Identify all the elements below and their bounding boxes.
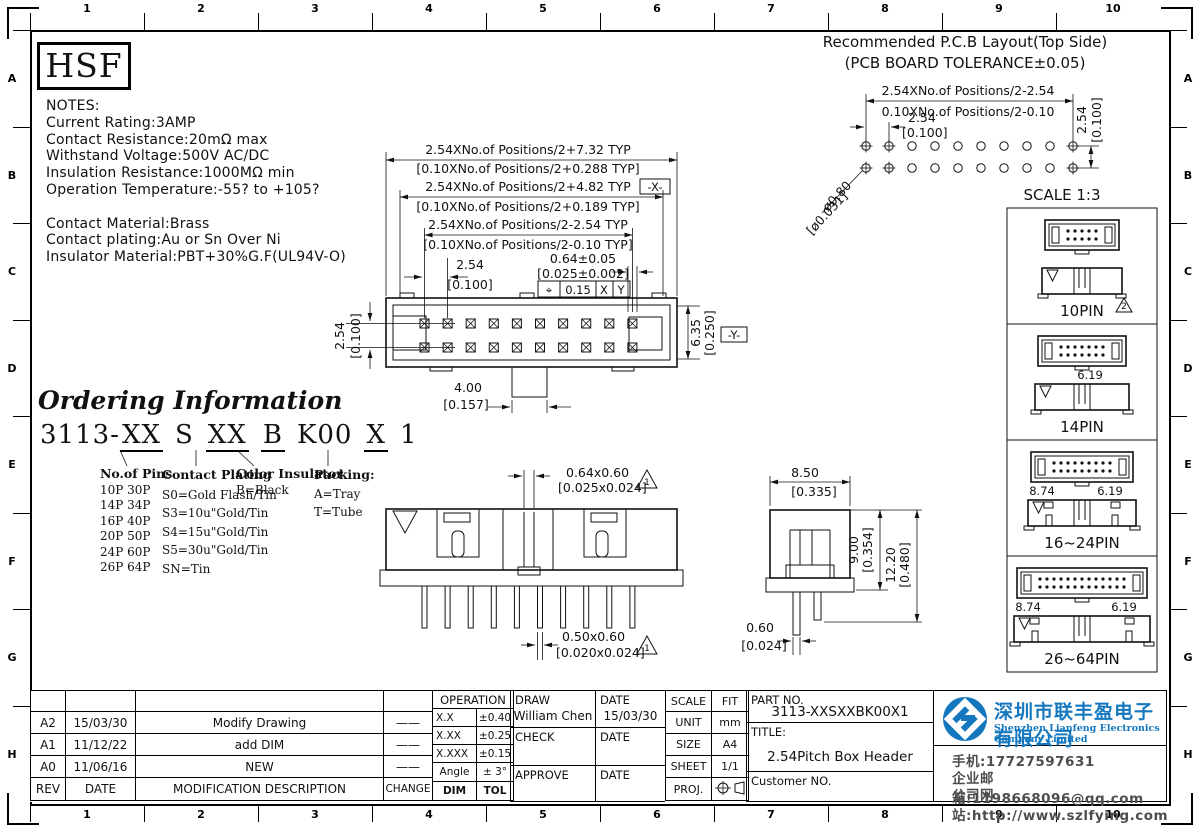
- plating-option: S3=10u"Gold/Tin: [162, 504, 277, 523]
- side-h2-in: [0.480]: [897, 542, 912, 588]
- scale-label: SCALE 1:3: [1024, 186, 1101, 204]
- approve-label: APPROVE: [515, 768, 569, 782]
- company-name-en: Shenzhen Lianfeng Electronics Company Li…: [994, 723, 1166, 745]
- pitch: 2.54: [456, 257, 484, 272]
- pcb-dim-mm: 2.54XNo.of Positions/2-2.54: [882, 83, 1055, 98]
- pcb-hole-pattern: [860, 140, 1080, 175]
- rev-triangle: 2: [1121, 302, 1127, 312]
- code-s: S: [175, 420, 194, 450]
- customer-cell: Customer NO.: [746, 772, 933, 802]
- dim1-in: [0.10XNo.of Positions/2+0.288 TYP]: [416, 161, 639, 176]
- pin-square-in: [0.025±0.002]: [537, 266, 629, 281]
- datum-x-label: -X-: [647, 180, 662, 194]
- check-cell: CHECK: [510, 728, 595, 766]
- variant-dim: 6.19: [1077, 368, 1103, 382]
- tol-value: ±0.40: [477, 709, 514, 727]
- code-prefix: 3113-: [40, 420, 120, 450]
- draw-date-cell: DATE 15/03/30: [595, 690, 665, 728]
- tol-label: X.XXX: [433, 745, 477, 763]
- rev-desc: NEW: [136, 756, 384, 778]
- rev-date: 11/12/22: [66, 734, 136, 756]
- row-pitch-in: [0.100]: [348, 313, 363, 359]
- ordering-code: 3113- XX S XX B K00 X 1: [40, 420, 418, 452]
- notes-block: NOTES:Current Rating:3AMPContact Resista…: [46, 98, 376, 266]
- company-website: 公司网站:http://www.szlfying.com: [952, 784, 1168, 824]
- rev-change: ——: [384, 712, 433, 734]
- rev-triangle-bottom: 1: [644, 644, 650, 654]
- height-in: [0.250]: [702, 310, 717, 356]
- part-no-value: 3113-XXSXXBK00X1: [747, 704, 933, 720]
- note-line: Insulation Resistance:1000MΩ min: [46, 165, 376, 182]
- gdt-frame: ⌖ 0.15 X Y: [538, 281, 630, 297]
- rev-desc: Modify Drawing: [136, 712, 384, 734]
- draw-label: DRAW: [515, 693, 550, 707]
- operation-header: OPERATION: [433, 691, 514, 709]
- pcb-rowpitch: 2.54: [1074, 106, 1089, 134]
- code-packing: X: [364, 420, 388, 452]
- scale-label: SCALE: [666, 691, 712, 712]
- pcb-rowpitch-in: [0.100]: [1089, 97, 1104, 143]
- change-header: CHANGE: [384, 778, 433, 801]
- rev-date: 11/06/16: [66, 756, 136, 778]
- ordering-title: Ordering Information: [38, 386, 342, 415]
- gdt-tol: 0.15: [565, 283, 591, 297]
- code-pins: XX: [120, 420, 163, 452]
- pin-variant-panels: 10PIN214PIN6.1916~24PIN8.746.1926~64PIN8…: [1007, 208, 1157, 672]
- meta-table: SCALEFIT UNITmm SIZEA4 SHEET1/1 PROJ.: [665, 690, 749, 801]
- date-label: DATE: [600, 768, 630, 782]
- operation-table: OPERATION X.X±0.40 X.XX±0.25 X.XXX±0.15 …: [432, 690, 514, 801]
- engineering-drawing-page: { "border": { "cols": ["1","2","3","4","…: [0, 0, 1200, 832]
- note-line: Contact Material:Brass: [46, 216, 376, 233]
- variant-label: 26~64PIN: [1044, 650, 1119, 668]
- rev-triangle-top: 1: [644, 478, 650, 488]
- pcb-pitch: 2.54: [908, 110, 936, 125]
- projection-symbol-icon: [712, 778, 749, 801]
- tol-value: ± 3°: [477, 763, 514, 782]
- note-line: Current Rating:3AMP: [46, 115, 376, 132]
- desc-header: MODIFICATION DESCRIPTION: [136, 778, 384, 801]
- approve-date-cell: DATE: [595, 766, 665, 802]
- title-label: TITLE:: [751, 725, 786, 739]
- draw-name: William Chen: [511, 709, 595, 723]
- approve-cell: APPROVE: [510, 766, 595, 802]
- company-header-cell: 深圳市联丰盈电子有限公司 Shenzhen Lianfeng Electroni…: [933, 690, 1167, 746]
- variant-label: 16~24PIN: [1044, 534, 1119, 552]
- plating-option: S5=30u"Gold/Tin: [162, 541, 277, 560]
- pcb-title: Recommended P.C.B Layout(Top Side): [823, 33, 1107, 51]
- customer-label: Customer NO.: [751, 774, 831, 788]
- unit-value: mm: [712, 712, 749, 734]
- rev-change: ——: [384, 734, 433, 756]
- pcb-layout: Recommended P.C.B Layout(Top Side) (PCB …: [803, 33, 1107, 237]
- dim3-in: [0.10XNo.of Positions/2-0.10 TYP]: [423, 237, 632, 252]
- packing-option: A=Tray: [314, 485, 375, 503]
- variant-dim: 6.19: [1097, 484, 1123, 498]
- draw-date: 15/03/30: [596, 709, 665, 723]
- tol-value: ±0.25: [477, 727, 514, 745]
- date-header: DATE: [66, 778, 136, 801]
- plating-option: S4=15u"Gold/Tin: [162, 523, 277, 542]
- scale-value: FIT: [712, 691, 749, 712]
- top-view-pins: [420, 319, 637, 352]
- unit-label: UNIT: [666, 712, 712, 734]
- rev-date: 15/03/30: [66, 712, 136, 734]
- size-label: SIZE: [666, 734, 712, 756]
- code-one: 1: [400, 420, 418, 450]
- variant-dim: 8.74: [1015, 600, 1041, 614]
- rev-id: A2: [31, 712, 66, 734]
- front-view-pins: [422, 586, 635, 628]
- tol-label: Angle: [433, 763, 477, 782]
- pcb-pitch-in: [0.100]: [902, 125, 948, 140]
- part-no-cell: PART NO. 3113-XXSXXBK00X1: [746, 690, 933, 723]
- sheet-label: SHEET: [666, 756, 712, 778]
- ordering-leaders: [120, 450, 328, 466]
- side-view: 8.50 [0.335] 9.00 [0.354] 12.20 [0.480] …: [741, 465, 922, 655]
- packing-option: T=Tube: [314, 503, 375, 521]
- packing-header: Packing:: [314, 466, 375, 484]
- title-cell: TITLE: 2.54Pitch Box Header: [746, 723, 933, 772]
- check-date-cell: DATE: [595, 728, 665, 766]
- note-line: NOTES:: [46, 98, 376, 115]
- variant-label: 10PIN: [1060, 302, 1104, 320]
- side-pin-in: [0.024]: [741, 638, 787, 653]
- plating-option: SN=Tin: [162, 560, 277, 579]
- tol-value: TOL: [477, 782, 514, 801]
- pin-square: 0.64±0.05: [550, 251, 616, 266]
- revision-table: A2 15/03/30 Modify Drawing —— A1 11/12/2…: [30, 690, 433, 801]
- row-pitch: 2.54: [332, 322, 347, 350]
- code-k00: K00: [297, 420, 353, 450]
- pin-top-dim: 0.64x0.60: [566, 465, 629, 480]
- side-width-in: [0.335]: [791, 484, 837, 499]
- note-line: Contact plating:Au or Sn Over Ni: [46, 232, 376, 249]
- note-line: Withstand Voltage:500V AC/DC: [46, 148, 376, 165]
- note-line: Operation Temperature:-55? to +105?: [46, 182, 376, 199]
- dim2-in: [0.10XNo.of Positions/2+0.189 TYP]: [416, 199, 639, 214]
- side-width: 8.50: [791, 465, 819, 480]
- sheet-value: 1/1: [712, 756, 749, 778]
- note-line: Insulator Material:PBT+30%G.F(UL94V-O): [46, 249, 376, 266]
- dim1: 2.54XNo.of Positions/2+7.32 TYP: [425, 142, 631, 157]
- pcb-tolerance: (PCB BOARD TOLERANCE±0.05): [845, 54, 1086, 72]
- code-plating: XX: [206, 420, 249, 452]
- front-view: 0.64x0.60 [0.025x0.024] 1 0.50x0.60 [0.0…: [380, 465, 683, 660]
- gdt-symbol: ⌖: [546, 283, 553, 297]
- variant-dim: 6.19: [1111, 600, 1137, 614]
- draw-cell: DRAW William Chen: [510, 690, 595, 728]
- tab-width-in: [0.157]: [443, 397, 489, 412]
- date-label: DATE: [600, 730, 630, 744]
- tab-width: 4.00: [454, 380, 482, 395]
- title-block: A2 15/03/30 Modify Drawing —— A1 11/12/2…: [30, 690, 1167, 802]
- dim2: 2.54XNo.of Positions/2+4.82 TYP: [425, 179, 631, 194]
- code-color: B: [261, 420, 285, 452]
- pin-bot-dim-in: [0.020x0.024]: [556, 645, 645, 660]
- tol-label: DIM: [433, 782, 477, 801]
- variant-dim: 8.74: [1029, 484, 1055, 498]
- gdt-datum1: X: [600, 283, 608, 297]
- variant-label: 14PIN: [1060, 418, 1104, 436]
- height: 6.35: [688, 319, 703, 347]
- check-label: CHECK: [515, 730, 555, 744]
- rev-desc: add DIM: [136, 734, 384, 756]
- rev-change: ——: [384, 756, 433, 778]
- note-line: Contact Resistance:20mΩ max: [46, 132, 376, 149]
- side-h2: 12.20: [883, 547, 898, 583]
- date-label: DATE: [600, 693, 630, 707]
- side-h1-in: [0.354]: [860, 527, 875, 573]
- note-line: [46, 199, 376, 216]
- gdt-datum2: Y: [616, 283, 625, 297]
- company-logo-icon: [940, 695, 990, 743]
- company-contact-cell: 手机:17727597631 企业邮箱:1198668096@qq.com 公司…: [933, 746, 1167, 802]
- rev-header: REV: [31, 778, 66, 801]
- tol-value: ±0.15: [477, 745, 514, 763]
- tol-label: X.X: [433, 709, 477, 727]
- dim3: 2.54XNo.of Positions/2-2.54 TYP: [428, 217, 628, 232]
- side-h1: 9.00: [846, 536, 861, 564]
- pin-top-dim-in: [0.025x0.024]: [558, 480, 647, 495]
- pin-bot-dim: 0.50x0.60: [562, 629, 625, 644]
- rev-id: A1: [31, 734, 66, 756]
- tol-label: X.XX: [433, 727, 477, 745]
- top-view: 2.54XNo.of Positions/2+7.32 TYP [0.10XNo…: [332, 142, 747, 413]
- company-logo-hsf: HSF: [37, 42, 131, 90]
- proj-label: PROJ.: [666, 778, 712, 801]
- pitch-in: [0.100]: [447, 277, 493, 292]
- side-pin: 0.60: [746, 620, 774, 635]
- rev-id: A0: [31, 756, 66, 778]
- drawing-title: 2.54Pitch Box Header: [747, 749, 933, 765]
- size-value: A4: [712, 734, 749, 756]
- datum-y-label: -Y-: [728, 328, 741, 342]
- ordering-packing-column: Packing: A=TrayT=Tube: [314, 466, 375, 521]
